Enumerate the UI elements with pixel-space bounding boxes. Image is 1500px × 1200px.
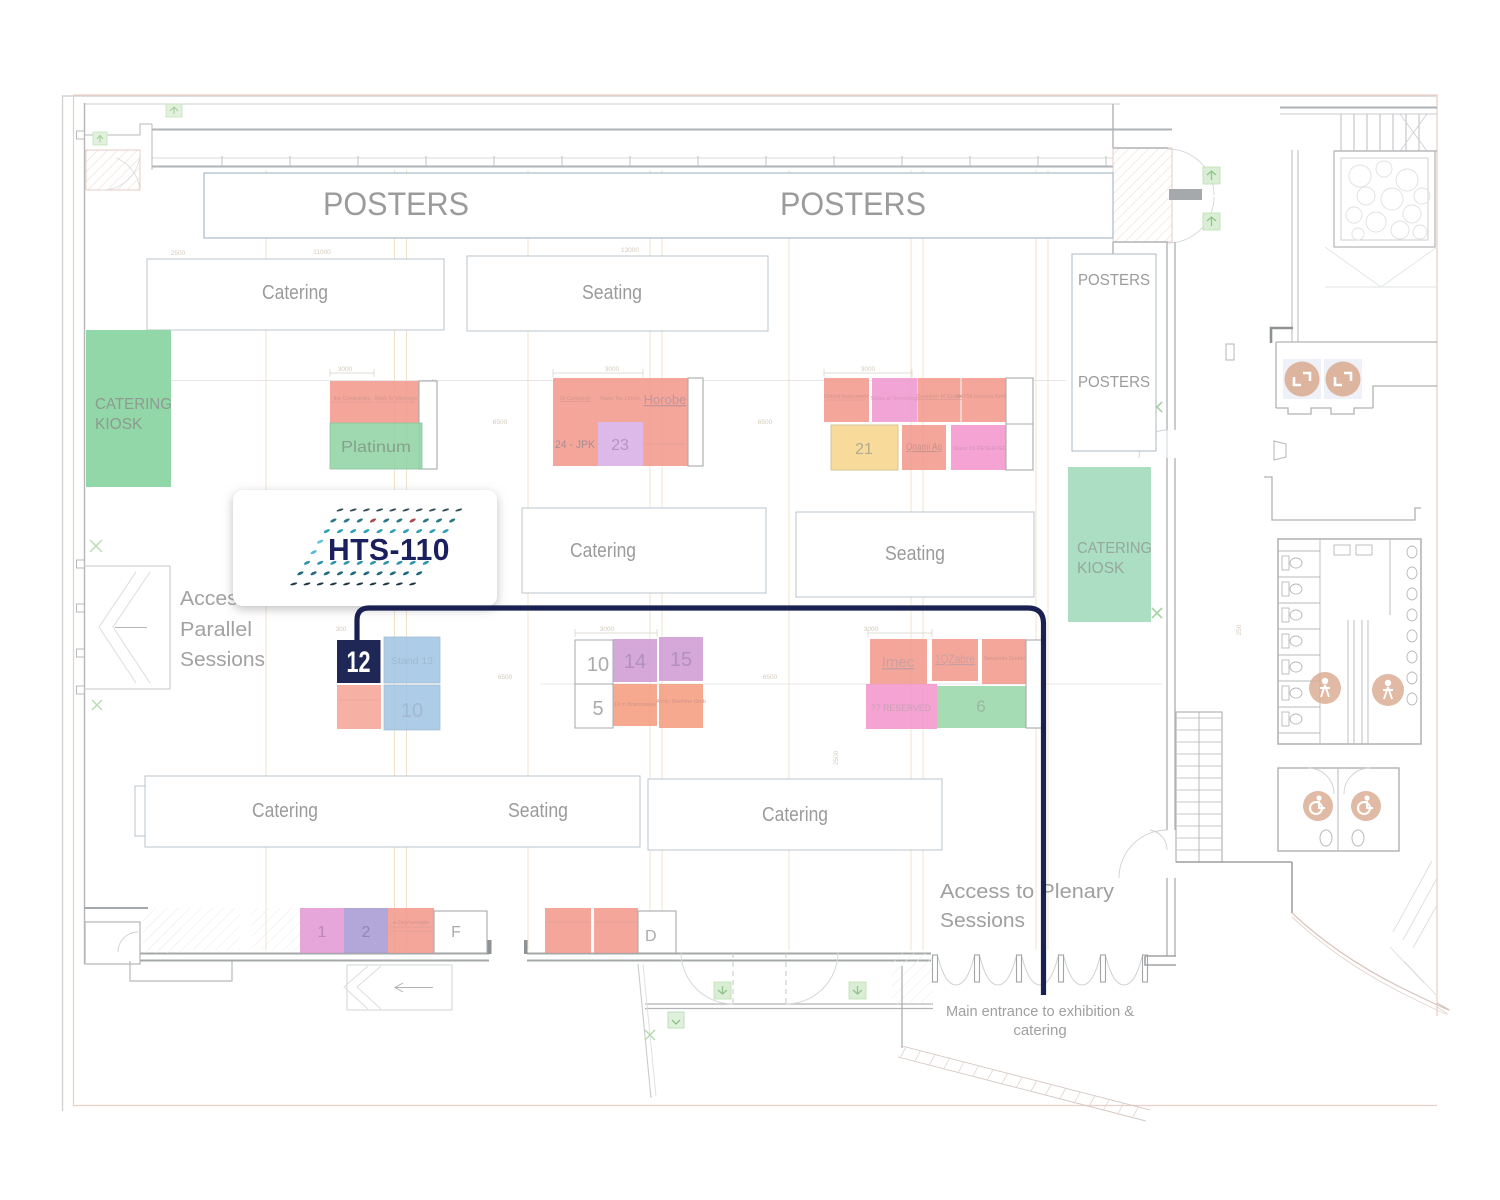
svg-text:6500: 6500 — [758, 419, 773, 426]
svg-text:3000: 3000 — [600, 626, 615, 633]
svg-text:Qnami Ag: Qnami Ag — [906, 441, 942, 453]
svg-text:Nano Tec Lithon: Nano Tec Lithon — [600, 396, 640, 402]
svg-text:F: F — [451, 924, 461, 941]
svg-text:12: 12 — [346, 644, 370, 678]
svg-text:24 - JPK: 24 - JPK — [555, 439, 596, 451]
svg-text:Catering: Catering — [570, 540, 636, 562]
svg-text:D: D — [645, 928, 657, 945]
svg-text:Swiss at Technolog: Swiss at Technolog — [871, 396, 918, 402]
svg-text:KIOSK: KIOSK — [95, 416, 143, 433]
svg-text:15: 15 — [670, 649, 692, 671]
svg-text:14 m Brainsweep: 14 m Brainsweep — [614, 702, 657, 708]
svg-text:Arctic Machine Gmb: Arctic Machine Gmb — [656, 699, 706, 705]
svg-text:POSTERS: POSTERS — [1078, 272, 1150, 289]
svg-text:Access to Plenary: Access to Plenary — [940, 880, 1115, 903]
svg-text:Catering: Catering — [252, 800, 318, 822]
svg-text:Parallel: Parallel — [180, 619, 252, 641]
svg-text:6500: 6500 — [493, 419, 508, 426]
svg-text:Main entrance to exhibition &: Main entrance to exhibition & — [946, 1003, 1134, 1020]
svg-text:Imec: Imec — [882, 654, 915, 671]
svg-text:3000: 3000 — [605, 366, 620, 373]
svg-text:Seating: Seating — [885, 543, 945, 565]
svg-text:1: 1 — [318, 924, 327, 941]
svg-text:Catering: Catering — [762, 804, 828, 826]
svg-text:Catering: Catering — [262, 282, 328, 304]
svg-text:?7 RESERVED: ?7 RESERVED — [871, 703, 931, 714]
svg-text:Mark IV Microsys: Mark IV Microsys — [375, 396, 417, 402]
svg-text:the Companies: the Companies — [334, 396, 371, 402]
svg-text:CATERING: CATERING — [95, 396, 172, 413]
svg-text:w Dephasegde: w Dephasegde — [392, 920, 430, 926]
svg-text:6: 6 — [976, 697, 985, 716]
svg-text:KIOSK: KIOSK — [1077, 560, 1125, 577]
svg-text:300: 300 — [336, 626, 347, 633]
svg-text:catering: catering — [1013, 1022, 1066, 1039]
svg-text:11000: 11000 — [313, 249, 331, 256]
svg-text:14: 14 — [624, 651, 646, 673]
svg-text:Seating: Seating — [508, 800, 568, 822]
svg-text:10: 10 — [587, 654, 609, 676]
svg-text:3k Company: 3k Company — [560, 396, 591, 402]
svg-text:3000: 3000 — [338, 366, 353, 373]
svg-text:Seating: Seating — [582, 282, 642, 304]
svg-text:Oxford Instrument: Oxford Instrument — [824, 394, 868, 400]
svg-text:POSTERS: POSTERS — [780, 186, 926, 222]
svg-text:POSTERS: POSTERS — [323, 186, 469, 222]
svg-text:HTS-110: HTS-110 — [328, 532, 450, 567]
svg-text:Stand 19 RESERVED: Stand 19 RESERVED — [953, 446, 1007, 452]
svg-text:250: 250 — [1236, 624, 1243, 635]
svg-text:1QZabre: 1QZabre — [935, 652, 975, 666]
svg-text:21: 21 — [855, 441, 873, 458]
svg-text:10: 10 — [401, 700, 423, 722]
svg-text:13000: 13000 — [621, 247, 639, 254]
svg-text:5: 5 — [592, 698, 603, 720]
svg-text:Stand 13: Stand 13 — [391, 655, 433, 667]
svg-text:Tanamoto GmbH: Tanamoto GmbH — [983, 656, 1025, 662]
svg-text:3000: 3000 — [864, 626, 879, 633]
svg-text:2: 2 — [362, 924, 371, 941]
svg-text:Platinum: Platinum — [341, 439, 411, 456]
svg-text:CATERING: CATERING — [1077, 540, 1152, 557]
svg-text:Horobe: Horobe — [644, 392, 687, 407]
svg-text:NKT08 sensors GmbH: NKT08 sensors GmbH — [955, 394, 1010, 400]
svg-text:3000: 3000 — [861, 366, 876, 373]
svg-text:Sessions: Sessions — [180, 649, 265, 671]
svg-text:2500: 2500 — [171, 250, 186, 257]
svg-text:POSTERS: POSTERS — [1078, 374, 1150, 391]
svg-text:Sessions: Sessions — [940, 909, 1025, 932]
svg-text:6500: 6500 — [763, 674, 778, 681]
svg-text:6500: 6500 — [498, 674, 513, 681]
svg-text:2500: 2500 — [833, 750, 840, 765]
svg-text:23: 23 — [611, 437, 629, 454]
